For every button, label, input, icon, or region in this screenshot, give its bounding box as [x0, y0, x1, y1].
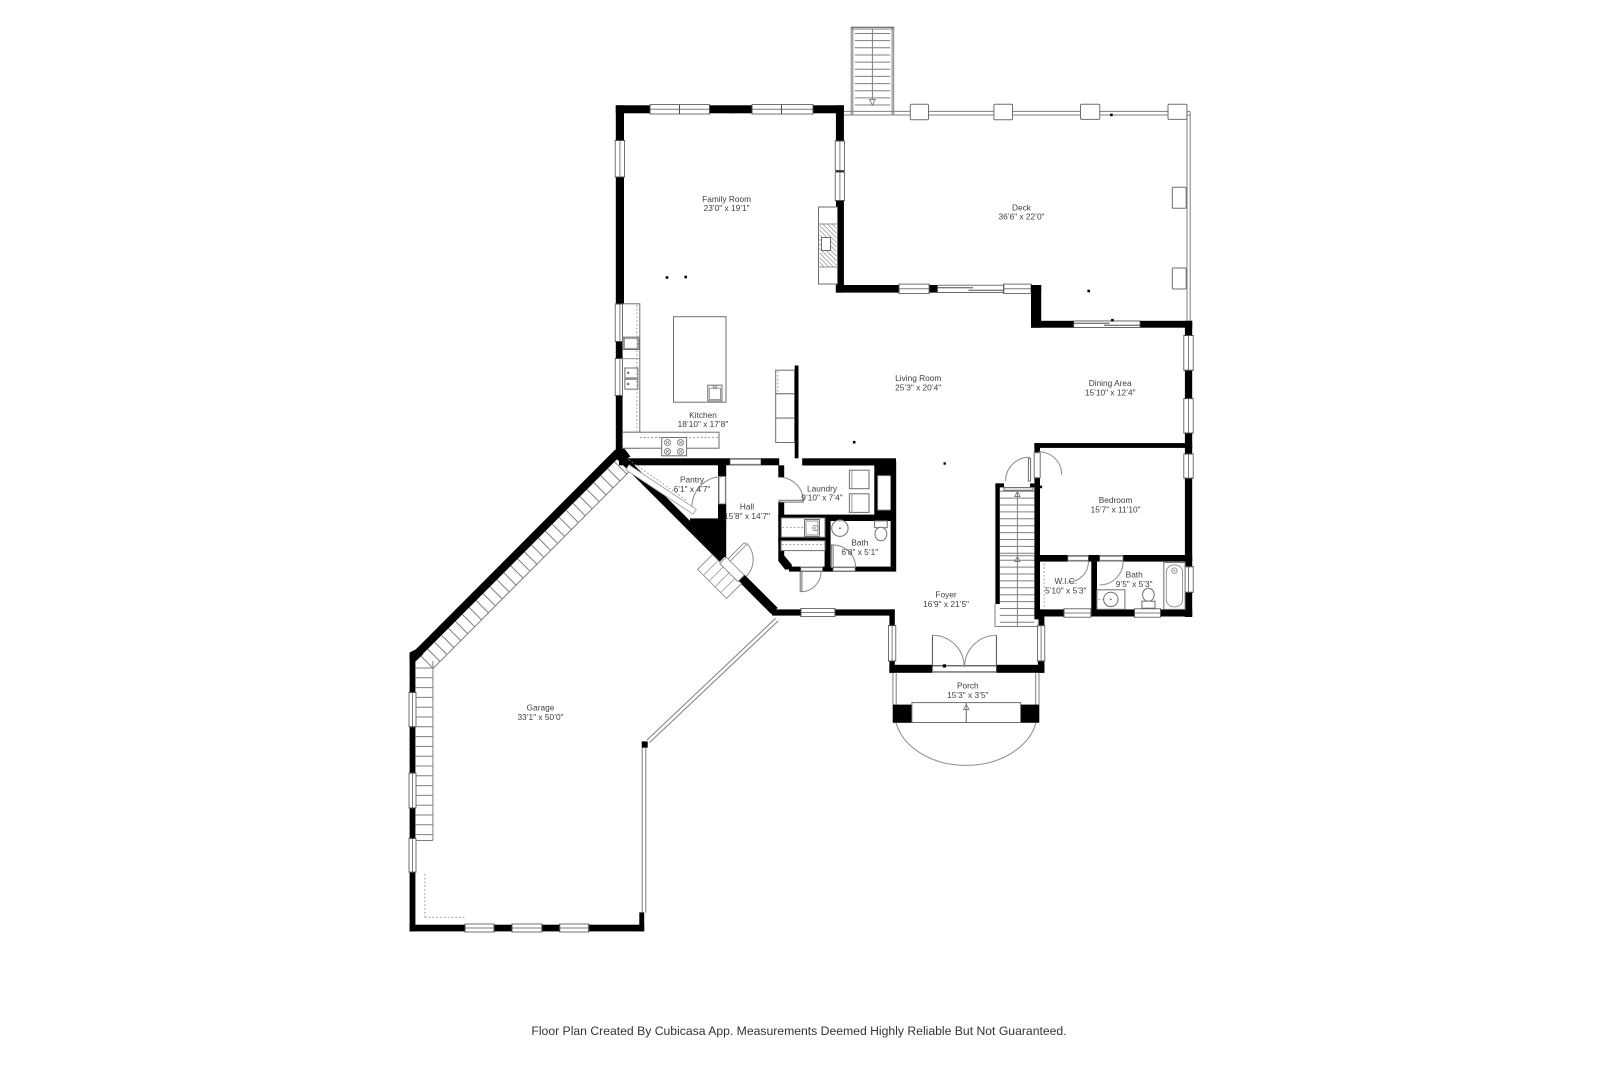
- svg-text:16’9" x 21’5": 16’9" x 21’5": [923, 599, 969, 609]
- svg-text:6’1" x 4’7": 6’1" x 4’7": [674, 484, 711, 494]
- svg-text:15’10" x 12’4": 15’10" x 12’4": [1085, 388, 1136, 398]
- svg-text:Floor Plan Created By Cubicasa: Floor Plan Created By Cubicasa App. Meas…: [531, 1024, 1066, 1038]
- svg-text:25’3" x 20’4": 25’3" x 20’4": [895, 382, 941, 392]
- svg-text:33’1" x 50’0": 33’1" x 50’0": [517, 712, 563, 722]
- svg-text:23’0" x 19’1": 23’0" x 19’1": [704, 203, 750, 213]
- svg-text:15’7" x 11’10": 15’7" x 11’10": [1091, 504, 1141, 514]
- svg-text:15’3" x 3’5": 15’3" x 3’5": [947, 690, 988, 700]
- svg-text:15’8" x 14’7": 15’8" x 14’7": [724, 511, 770, 521]
- svg-text:9’5" x 5’3": 9’5" x 5’3": [1116, 579, 1153, 589]
- svg-text:5’10" x 5’3": 5’10" x 5’3": [1045, 586, 1086, 596]
- svg-text:9’10" x 7’4": 9’10" x 7’4": [801, 493, 842, 503]
- svg-text:6’8" x 5’1": 6’8" x 5’1": [841, 547, 878, 557]
- svg-text:36’6" x 22’0": 36’6" x 22’0": [998, 212, 1044, 222]
- svg-text:18’10" x 17’8": 18’10" x 17’8": [678, 419, 729, 429]
